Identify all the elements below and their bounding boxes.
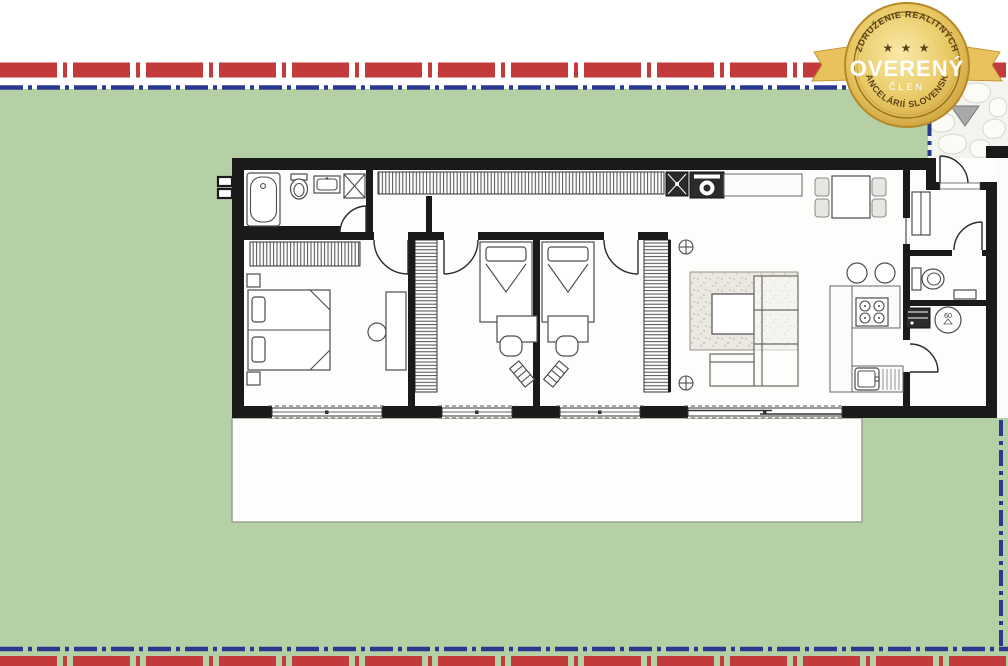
window-icon	[556, 406, 644, 418]
washing-machine-icon	[666, 172, 688, 196]
wardrobe-icon	[415, 240, 437, 392]
entrance-threshold	[940, 183, 980, 189]
wardrobe-icon	[644, 240, 670, 392]
boiler-icon: 60	[935, 307, 961, 333]
washbasin-icon	[314, 176, 340, 193]
chair-icon	[556, 336, 578, 356]
laundry	[666, 172, 802, 198]
terrace	[232, 418, 862, 522]
toilet-icon	[912, 268, 944, 290]
shower-icon	[344, 174, 365, 198]
single-bed-icon	[542, 242, 594, 322]
single-bed-icon	[480, 242, 532, 322]
hall-counter	[724, 174, 802, 196]
washing-machine-icon	[906, 308, 930, 328]
badge-member: ČLEN	[889, 82, 925, 92]
cooktop-icon	[856, 298, 888, 326]
wardrobe-icon	[250, 242, 360, 266]
nightstand-icon	[247, 372, 260, 385]
coffee-table-icon	[712, 294, 754, 334]
badge-stars: ★ ★ ★	[883, 41, 932, 55]
entry-hall	[912, 192, 930, 235]
bar-stool-icon	[875, 263, 895, 283]
double-bed-icon	[248, 290, 330, 370]
dryer-icon	[690, 172, 724, 198]
chair-icon	[500, 336, 522, 356]
side-strip	[997, 158, 1008, 418]
nightstand-icon	[247, 274, 260, 287]
floor-plan-scene: 60	[0, 0, 1008, 666]
bathtub-icon	[247, 173, 280, 226]
stool-icon	[368, 323, 386, 341]
dining-table-icon	[832, 176, 870, 218]
badge-title: OVERENÝ	[850, 56, 965, 81]
dressing-table-icon	[386, 292, 406, 370]
wardrobe-icon	[378, 172, 664, 194]
sliding-door-icon	[684, 406, 846, 418]
toilet-icon	[291, 174, 308, 199]
bar-stool-icon	[847, 263, 867, 283]
window-icon	[268, 406, 386, 418]
shelf	[954, 290, 976, 299]
window-icon	[438, 406, 516, 418]
